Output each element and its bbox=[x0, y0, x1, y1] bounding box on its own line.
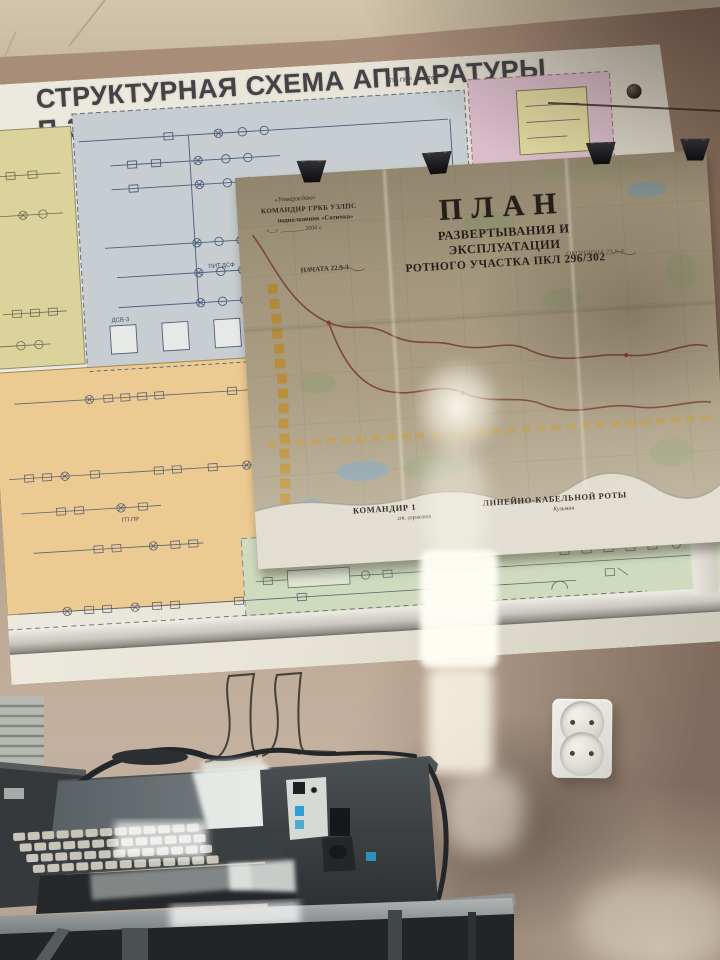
map-route-nodes bbox=[326, 303, 630, 403]
panel-label bbox=[293, 782, 305, 794]
control-panel bbox=[286, 777, 328, 840]
keyboard-glare bbox=[115, 822, 207, 858]
teletype-machine-and-table bbox=[0, 660, 720, 960]
map-marker-strip bbox=[267, 418, 710, 444]
map-title-block: ПЛАН РАЗВЕРТЫВАНИЯ И ЭКСПЛУАТАЦИИ РОТНОГ… bbox=[396, 184, 610, 275]
front-glare bbox=[228, 860, 296, 892]
blue-sticker bbox=[366, 852, 376, 861]
ceiling-seam bbox=[68, 0, 105, 46]
svg-text:ГП.ПР: ГП.ПР bbox=[122, 517, 140, 524]
blue-sticker bbox=[295, 806, 304, 816]
svg-text:ТФ: ТФ bbox=[427, 76, 436, 83]
map-marker-column bbox=[267, 283, 294, 503]
classroom-photo: СТРУКТУРНАЯ СХЕМА АППАРАТУРЫ П-302-О bbox=[0, 0, 720, 960]
indicator bbox=[311, 787, 317, 793]
svg-text:ДСВ-3: ДСВ-3 bbox=[111, 317, 130, 324]
ribbed-case bbox=[0, 696, 44, 764]
commander-name: Кузьмин bbox=[553, 505, 575, 512]
svg-text:ПП.ПЕР: ПП.ПЕР bbox=[389, 77, 412, 84]
knob bbox=[329, 845, 347, 859]
cable-coil bbox=[112, 749, 188, 765]
blue-sticker bbox=[295, 820, 304, 829]
paper-slot bbox=[330, 808, 350, 836]
deployment-plan-map: «Утверждаю» КОМАНДИР ГРКБ УЗЛПС подполко… bbox=[235, 150, 720, 569]
